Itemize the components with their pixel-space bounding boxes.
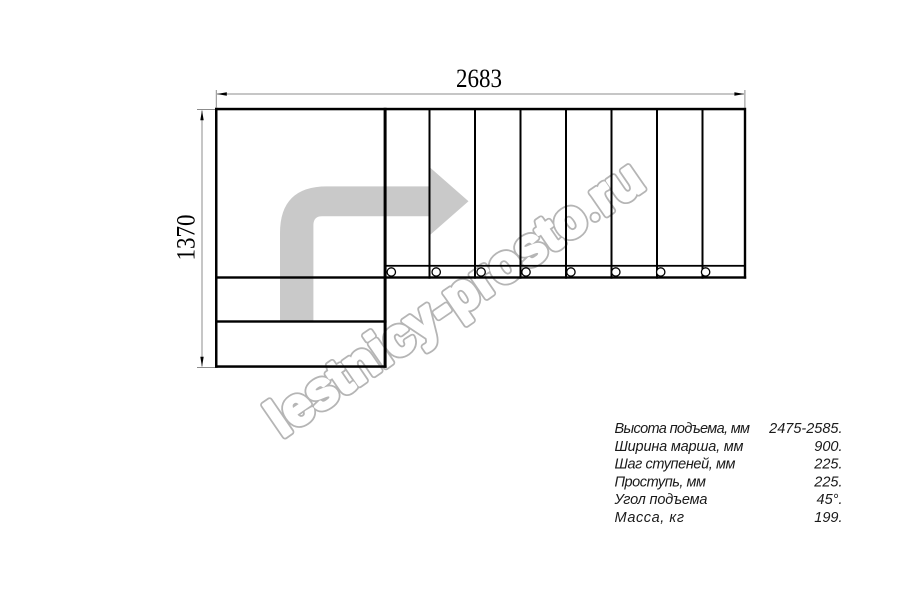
svg-text:Шаг ступеней, мм: Шаг ступеней, мм [615,457,736,473]
svg-text:1370: 1370 [172,215,201,261]
svg-text:225.: 225. [813,474,842,490]
svg-text:2683: 2683 [456,64,502,93]
svg-text:Проступь, мм: Проступь, мм [615,474,707,490]
svg-text:45°.: 45°. [817,492,843,508]
svg-text:Угол подъема: Угол подъема [614,492,708,508]
svg-text:Высота подъема, мм: Высота подъема, мм [615,421,751,437]
svg-text:199.: 199. [814,510,842,526]
svg-text:Масса, кг: Масса, кг [615,510,685,526]
svg-text:2475-2585.: 2475-2585. [768,421,842,437]
svg-text:225.: 225. [813,457,842,473]
svg-text:900.: 900. [814,439,842,455]
svg-text:Ширина марша, мм: Ширина марша, мм [615,439,744,455]
